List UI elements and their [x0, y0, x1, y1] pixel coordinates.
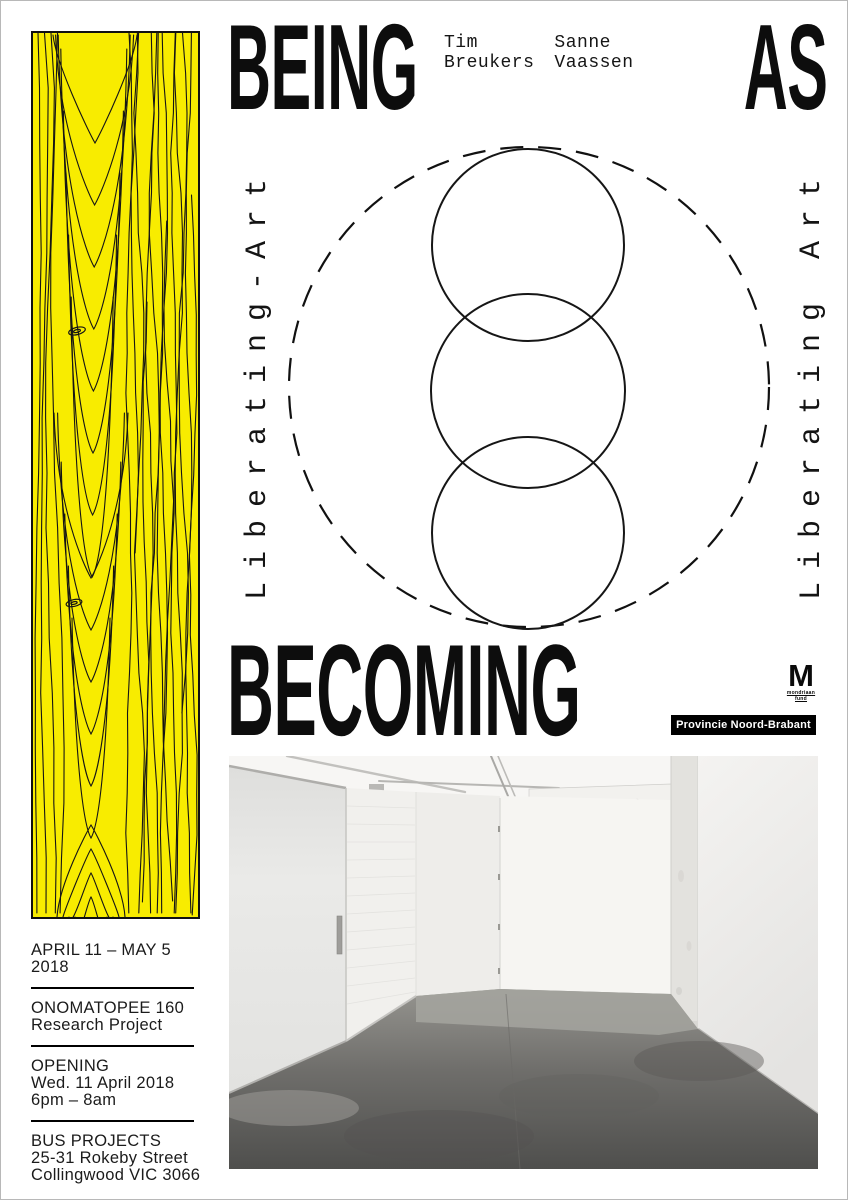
artist-2: Sanne Vaassen: [554, 34, 633, 73]
circle-middle: [431, 294, 625, 488]
circle-bottom: [432, 437, 624, 629]
event-details: APRIL 11 – MAY 5 2018 ONOMATOPEE 160 Res…: [31, 942, 201, 1184]
dashed-circle: [289, 147, 769, 627]
door-handle: [337, 916, 342, 954]
project-type: Research Project: [31, 1017, 201, 1034]
artist-names: Tim Breukers Sanne Vaassen: [444, 34, 634, 73]
artist-1-last-name: Breukers: [444, 54, 534, 74]
title-being: BEING: [227, 6, 418, 128]
mondriaan-fund-logo: M mondriaan fund: [784, 661, 818, 702]
gallery-photo: [229, 756, 818, 1169]
artist-1-first-name: Tim: [444, 34, 534, 54]
venue-name: BUS PROJECTS: [31, 1133, 201, 1150]
woodgrain-illustration: [33, 33, 198, 917]
project-number: ONOMATOPEE 160: [31, 1000, 201, 1017]
divider: [31, 1120, 194, 1122]
woodgrain-panel: [31, 31, 200, 919]
opening-heading: OPENING: [31, 1058, 201, 1075]
gallery-interior: [229, 756, 818, 1169]
mondriaan-m-letter: M: [784, 661, 818, 691]
vertical-text-right: Liberating Art: [795, 166, 829, 600]
artist-2-first-name: Sanne: [554, 34, 633, 54]
exhibition-poster: BEING AS BECOMING Tim Breukers Sanne Vaa…: [0, 0, 848, 1200]
title-as: AS: [743, 6, 827, 128]
venue-street: 25-31 Rokeby Street: [31, 1150, 201, 1167]
title-becoming: BECOMING: [227, 625, 581, 755]
circles-motif: [281, 139, 781, 639]
opening-date: Wed. 11 April 2018: [31, 1075, 201, 1092]
vertical-text-left: Liberating-Art: [241, 166, 275, 600]
divider: [31, 1045, 194, 1047]
opening-time: 6pm – 8am: [31, 1092, 201, 1109]
artist-2-last-name: Vaassen: [554, 54, 633, 74]
divider: [31, 987, 194, 989]
artist-1: Tim Breukers: [444, 34, 534, 73]
back-wall: [416, 792, 671, 996]
exhibition-dates: APRIL 11 – MAY 5 2018: [31, 942, 201, 976]
venue-city: Collingwood VIC 3066: [31, 1167, 201, 1184]
mondriaan-word-2: fund: [784, 697, 818, 703]
circle-top: [432, 149, 624, 341]
provincie-noord-brabant-badge: Provincie Noord-Brabant: [671, 715, 816, 735]
sliding-door: [229, 766, 346, 1093]
concrete-column: [669, 756, 700, 1030]
